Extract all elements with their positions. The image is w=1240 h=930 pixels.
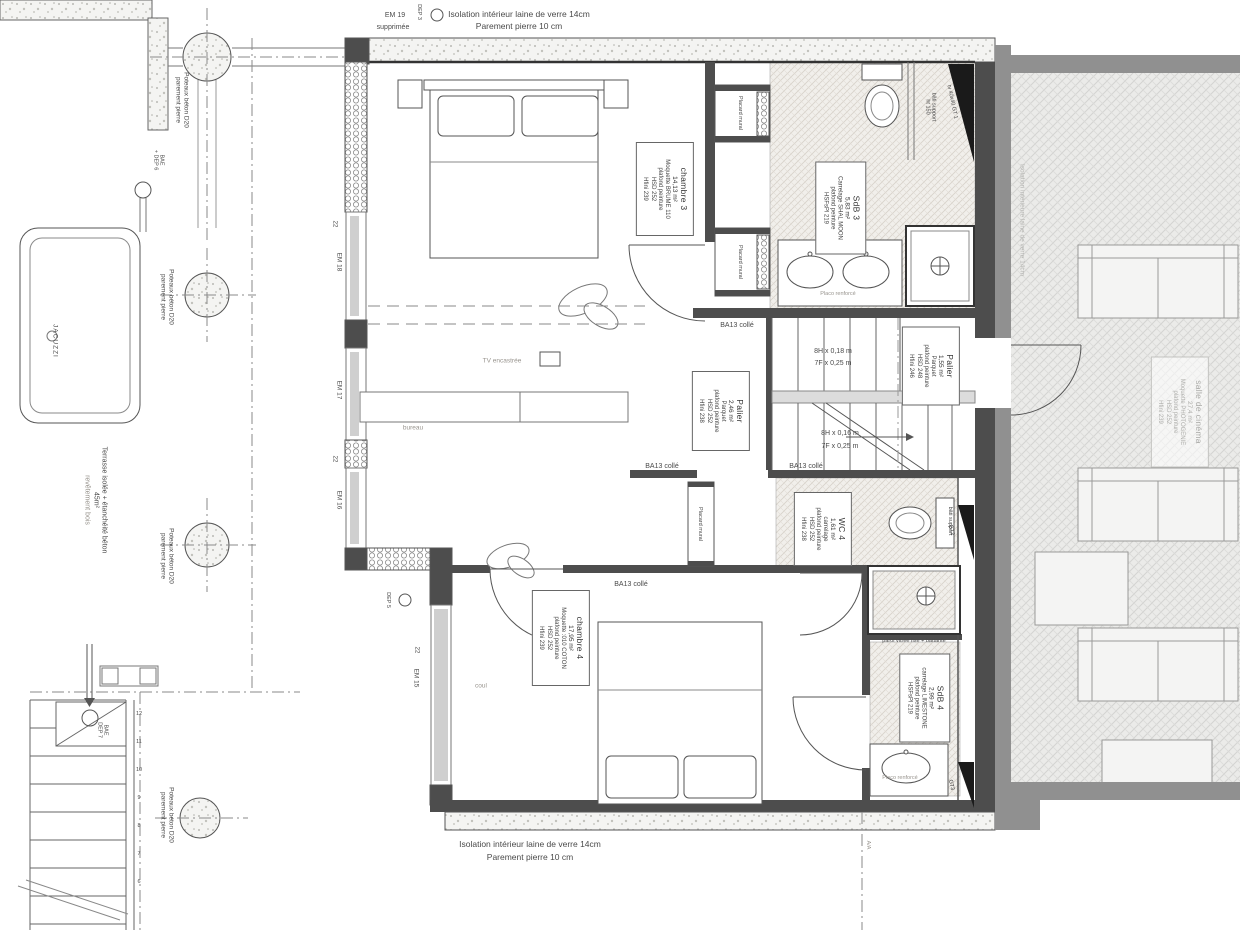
room-label-palier1: Palier 2,46 m² Parquet plafond peinture … <box>692 371 750 451</box>
floor-plan-drawing <box>0 0 1240 930</box>
tv-label: TV encastrée <box>483 357 522 364</box>
stair-lower-riser-note: 8H x 0,16 m <box>821 430 859 438</box>
placo-renforce-label-2: Placo renforcé <box>882 775 917 781</box>
room-label-sdb3: SdB 3 5,83 m² Carrelage SHAL MOON plafon… <box>816 162 867 255</box>
em19-label-line2: supprimée <box>377 24 410 32</box>
floor-plan: Isolation intérieur laine de verre 14cm … <box>0 0 1240 930</box>
room-label-chambre4: chambre 4 17,95 m² Moquette :010 COTON p… <box>532 590 590 686</box>
dep3-label: DEP 3 <box>416 4 422 20</box>
ba13-label-2: BA13 collé <box>645 463 678 471</box>
placard-label-1: Placard mural <box>737 96 743 130</box>
dep5-label: DEP 5 <box>385 592 391 608</box>
dim-22-a: 22 <box>331 221 338 228</box>
couloir-label: coul <box>475 682 487 689</box>
stair-lower-tread-note: 7F x 0,25 m <box>822 443 859 451</box>
poteaux-label-4: Poteaux béton D20 parement pierre <box>159 787 174 843</box>
window-label-em16: EM 16 <box>335 491 342 510</box>
em19-label-line1: EM 19 <box>385 12 405 20</box>
dim-22-c: 22 <box>413 647 420 654</box>
paroi-vitree-label: paroi vitrée fixe + battante <box>882 638 945 644</box>
window-label-em17: EM 17 <box>335 381 342 400</box>
step-number: 8 <box>137 823 140 829</box>
terrasse-label: Terrasse isolée + étanchéité béton 45m² … <box>83 447 108 554</box>
note-insulation-bottom-line2: Parement pierre 10 cm <box>487 853 573 863</box>
room-label-sdb4: SdB 4 2,99 m² carrelage LIMESTONE plafon… <box>900 654 951 743</box>
room-label-chambre3: chambre 3 14,13 m² Moquette BRUME 110 pl… <box>636 142 694 236</box>
poteaux-label-1: Poteaux béton D20 parement pierre <box>174 72 189 128</box>
dim-22-b: 22 <box>331 456 338 463</box>
bae-dep6-label: BAE + DEP 6 <box>152 150 165 171</box>
window-label-em18: EM 18 <box>335 253 342 272</box>
bati-support-ht150-label: bâti support ht 150 <box>924 93 937 122</box>
ba13-label-4: BA13 collé <box>614 581 647 589</box>
room-label-cinema: salle de cinéma 27,4 m² Moquette PHOTOGE… <box>1151 357 1209 468</box>
step-number: 10 <box>136 767 142 773</box>
note-insulation-top-line2: Parement pierre 10 cm <box>476 22 562 32</box>
isolation-right-label: Isolation intérieure laine de verre 14cm <box>1018 164 1025 276</box>
stair-upper-tread-note: 7F x 0,25 m <box>815 360 852 368</box>
note-insulation-bottom-line1: Isolation intérieur laine de verre 14cm <box>459 840 601 850</box>
step-number: 6 <box>137 879 140 885</box>
stair-upper-riser-note: 8H x 0,18 m <box>814 348 852 356</box>
window-label-em15: EM 15 <box>412 669 419 688</box>
exterior-stair <box>18 644 158 930</box>
step-number: 7 <box>137 851 140 857</box>
section-aa-label: A/A <box>865 841 871 850</box>
placo-renforce-label-1: Placo renforcé <box>820 291 855 297</box>
jacuzzi-label: JACUZZI <box>51 324 58 358</box>
placard-label-2: Placard mural <box>737 245 743 279</box>
poteaux-label-2: Poteaux béton D20 parement pierre <box>159 269 174 325</box>
ba13-label-1: BA13 collé <box>720 322 753 330</box>
step-number: 12 <box>136 711 142 717</box>
note-insulation-top-line1: Isolation intérieur laine de verre 14cm <box>448 10 590 20</box>
step-number: 9 <box>137 795 140 801</box>
step-number: 11 <box>136 739 142 745</box>
poteaux-label-3: Poteaux béton D20 parement pierre <box>159 528 174 584</box>
room-label-palier2: Palier 1,55 m² Parquet plafond peinture … <box>902 327 960 406</box>
bae-dep7-label: BAE DEP 7 <box>96 722 109 738</box>
ba13-label-3: BA13 collé <box>789 463 822 471</box>
room-label-wc4: WC 4 1,61 m² carrelage plafond peinture … <box>794 492 852 566</box>
placard-label-3: Placard mural <box>697 507 703 541</box>
bureau-label: bureau <box>403 424 423 431</box>
